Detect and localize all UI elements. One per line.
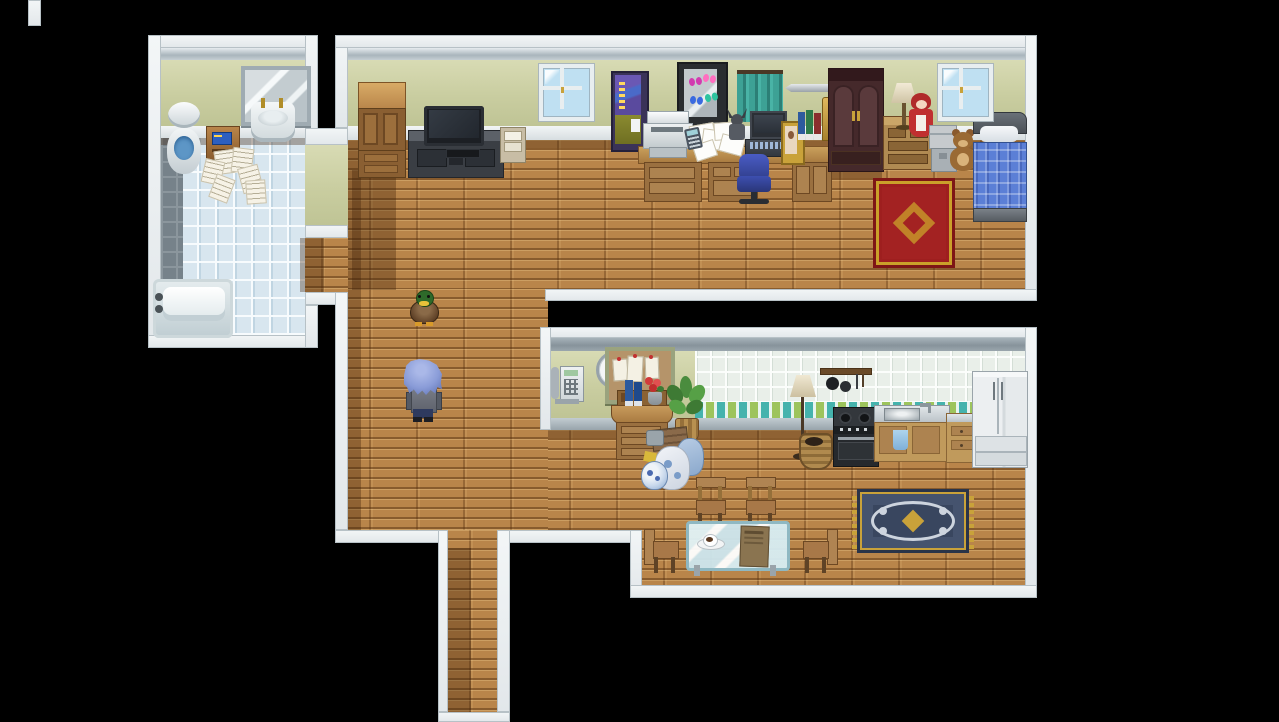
duck-foot	[415, 322, 422, 326]
table-leg	[694, 565, 700, 576]
duck-eye	[427, 295, 430, 298]
dining-chair-west	[644, 529, 679, 576]
doll-face	[916, 100, 927, 109]
corridor-shadow	[448, 548, 471, 712]
fridge-handle	[993, 382, 995, 400]
utensil	[862, 374, 864, 387]
faucet	[279, 98, 283, 108]
duck-foot	[426, 322, 433, 326]
player-shoe	[413, 417, 422, 422]
tub-faucet	[155, 305, 163, 313]
pinned-note	[626, 356, 643, 383]
duck-eye	[418, 295, 421, 298]
lamp-shade	[790, 375, 816, 397]
main-wall-top-border	[335, 35, 1037, 48]
bathtub	[153, 279, 233, 338]
game-viewport[interactable]	[0, 0, 1279, 722]
phone-keypad	[564, 379, 578, 395]
burner	[858, 412, 871, 424]
duck-npc[interactable]	[409, 290, 439, 327]
phone-display	[564, 370, 578, 376]
frying-pan	[826, 377, 839, 390]
stove-knobs	[840, 428, 872, 431]
menu-book	[739, 526, 769, 568]
wall-fragment	[28, 0, 41, 26]
dining-chair-north-2	[744, 477, 776, 526]
freezer-drawer	[975, 452, 1027, 466]
doorway-cap-top	[305, 128, 348, 145]
flower-vase	[644, 377, 666, 407]
freezer-drawer	[975, 436, 1027, 452]
refrigerator	[972, 371, 1028, 468]
window-latch	[561, 87, 564, 93]
toilet	[166, 102, 202, 180]
hallway-floor	[348, 289, 548, 530]
hallway-wall-left	[335, 292, 348, 530]
corridor-exit-cap	[438, 712, 510, 722]
kitchen-wall-bottom-left	[497, 530, 642, 543]
utensil	[856, 374, 858, 389]
doorway-baseboard	[305, 225, 348, 238]
flowers	[649, 384, 657, 392]
doorway-wall-face	[305, 145, 348, 225]
player-hair	[404, 359, 442, 395]
dining-wall-bottom	[630, 585, 1037, 598]
tub-faucet	[155, 293, 163, 301]
scattered-paper	[245, 179, 267, 204]
player-character[interactable]	[403, 359, 443, 422]
corridor-wall-right	[497, 530, 510, 712]
main-wall-bottom	[545, 289, 1037, 301]
drawer-knob	[960, 444, 963, 447]
phone-handset	[551, 367, 559, 399]
kitchen-wall-top	[540, 327, 1037, 338]
pinned-note	[645, 357, 660, 379]
towel	[893, 430, 908, 450]
magazine-rack	[500, 127, 526, 163]
hallway-wall-bottom	[335, 530, 448, 543]
dining-chair-north-1	[694, 477, 726, 526]
window-right	[938, 64, 993, 121]
rug-fringe	[969, 493, 974, 549]
rug-fringe	[852, 493, 857, 549]
basket	[799, 433, 833, 470]
wardrobe-shadow	[352, 170, 396, 290]
office-chair[interactable]	[733, 154, 775, 206]
sword-blade	[785, 84, 829, 92]
pin	[633, 354, 637, 358]
red-rug	[873, 178, 955, 268]
desk-books	[798, 110, 822, 140]
sink-counter	[874, 405, 948, 462]
figurine-horn	[727, 108, 733, 118]
bed	[973, 112, 1025, 220]
cabinet-books	[625, 380, 643, 406]
burner	[839, 412, 852, 424]
vase-pot	[648, 392, 662, 405]
armoire-handle	[852, 111, 855, 121]
main-wall-left	[335, 35, 348, 128]
oven-door	[838, 442, 874, 460]
dining-chair-east	[801, 529, 836, 576]
duck-beak	[419, 301, 429, 306]
main-wall-trim	[348, 48, 1025, 60]
tv	[424, 106, 484, 146]
dark-armoire	[828, 68, 884, 172]
printer	[643, 111, 691, 158]
light-wardrobe	[358, 82, 404, 176]
bed-blanket	[973, 142, 1027, 218]
hanging-pot-rack	[820, 365, 870, 401]
bathroom-wall-right-lower	[305, 305, 318, 348]
bed-pillow	[980, 126, 1018, 142]
game-console	[446, 149, 480, 158]
figurine	[727, 108, 747, 142]
bathroom-wall-trim	[161, 48, 305, 60]
junk-pot	[646, 430, 664, 446]
frying-pan	[840, 381, 851, 392]
player-shoe	[424, 417, 433, 422]
corridor-wall-left	[438, 530, 448, 712]
doorway-shadow	[300, 238, 324, 292]
sink-basin	[884, 408, 920, 421]
window-left	[539, 64, 594, 121]
rack-bar	[820, 368, 872, 375]
faucet	[261, 98, 265, 108]
wall-phone	[551, 366, 583, 404]
oven-handle	[838, 437, 874, 440]
armoire-handle	[857, 111, 860, 121]
wash-sink	[251, 102, 295, 142]
stove	[833, 407, 879, 467]
blue-vase	[641, 461, 668, 490]
fridge-handle	[1001, 382, 1003, 400]
coffee-cup	[697, 534, 723, 548]
navy-rug	[857, 489, 969, 553]
table-leg	[770, 565, 776, 576]
fridge-door-split	[997, 378, 999, 434]
bear-muzzle	[958, 140, 968, 147]
drawer-knob	[960, 430, 963, 433]
faucet	[928, 403, 931, 413]
pin	[617, 357, 621, 361]
pin	[649, 355, 653, 359]
kitchen-wall-left	[540, 327, 551, 430]
window-latch	[960, 87, 963, 93]
bear-belly	[957, 153, 969, 166]
bed-footboard	[973, 208, 1027, 222]
bathroom-wall-top	[148, 35, 318, 48]
